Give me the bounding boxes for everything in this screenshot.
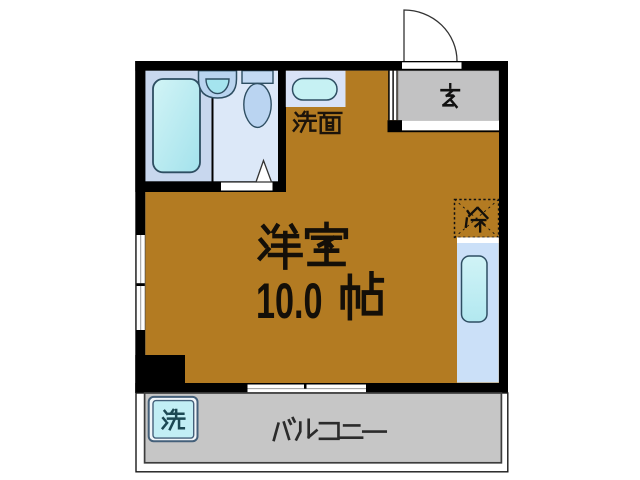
svg-text:10.0: 10.0 [256, 274, 323, 330]
